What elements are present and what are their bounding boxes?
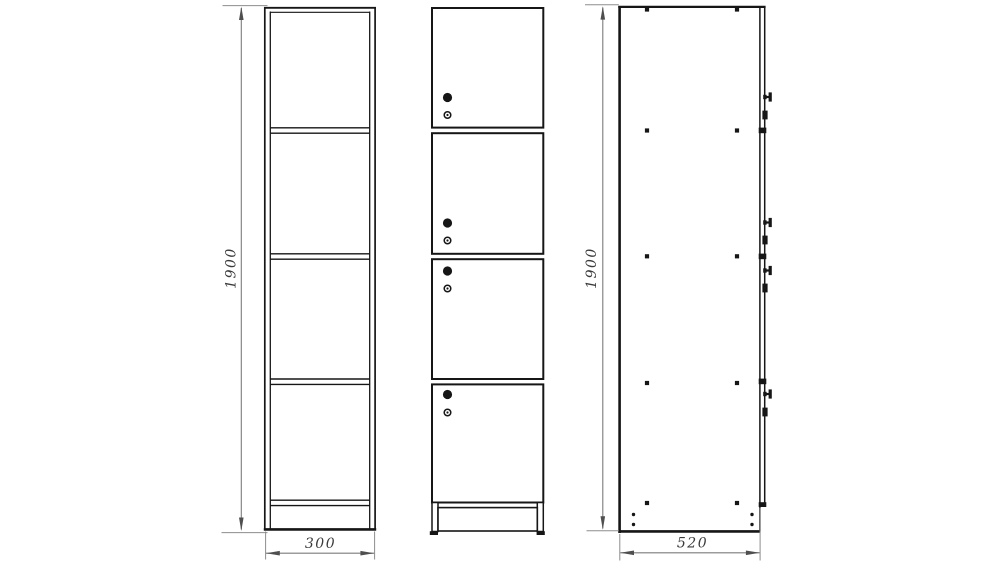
screw-mark xyxy=(632,513,635,516)
lock-pin-icon xyxy=(446,287,448,289)
dowel-mark xyxy=(735,381,739,385)
drawing-page: 1900 300 xyxy=(0,0,1000,565)
foot-screw-marks xyxy=(632,513,754,526)
front-width-dimension: 300 xyxy=(266,532,375,560)
door-4 xyxy=(432,384,543,502)
base-right-leg xyxy=(537,503,543,532)
dowel-mark xyxy=(645,128,649,132)
lock-side-icon xyxy=(762,389,771,416)
base-right-foot xyxy=(537,531,545,535)
side-depth-dimension-text: 520 xyxy=(677,536,708,552)
door-3 xyxy=(432,259,543,379)
dowel-mark xyxy=(735,128,739,132)
front-height-dimension: 1900 xyxy=(222,6,268,533)
cabinet-base xyxy=(430,503,545,536)
arrowhead-up xyxy=(239,7,244,20)
door-joint-cap xyxy=(759,254,767,260)
door-2 xyxy=(432,133,543,254)
arrowhead-up xyxy=(601,6,606,19)
arrowhead-down xyxy=(601,516,606,530)
dowel-mark xyxy=(735,254,739,258)
lock-knob-icon xyxy=(443,266,452,275)
lock-knob-icon xyxy=(443,93,452,102)
door-joint-cap xyxy=(759,128,767,134)
lock-side-icon xyxy=(762,218,771,245)
lock-side-icon xyxy=(762,266,771,293)
front-height-dimension-text: 1900 xyxy=(224,247,240,289)
dowel-marks xyxy=(645,7,739,505)
arrowhead-right xyxy=(746,551,760,556)
screw-mark xyxy=(750,513,753,516)
front-frame-view xyxy=(264,7,376,530)
door-joint-cap xyxy=(759,379,767,385)
shelf-2-lines xyxy=(270,254,370,259)
base-left-leg xyxy=(432,503,438,532)
technical-drawing-canvas: 1900 300 xyxy=(0,0,1000,565)
dowel-mark xyxy=(645,254,649,258)
dowel-mark xyxy=(645,501,649,505)
front-width-dimension-text: 300 xyxy=(305,536,336,552)
dowel-mark xyxy=(735,7,739,11)
lock-knob-icon xyxy=(443,390,452,399)
side-height-dimension-text: 1900 xyxy=(584,247,600,289)
arrowhead-left xyxy=(266,551,280,556)
side-depth-dimension: 520 xyxy=(620,508,760,561)
screw-mark xyxy=(632,523,635,526)
arrowhead-left xyxy=(620,551,634,556)
base-kick-panel xyxy=(438,508,537,531)
lock-pin-icon xyxy=(446,239,448,241)
shelf-4-lines xyxy=(270,500,370,505)
dowel-mark xyxy=(645,381,649,385)
lock-side-icon xyxy=(762,92,771,119)
arrowhead-down xyxy=(239,518,244,532)
dowel-mark xyxy=(735,501,739,505)
lock-knob-icon xyxy=(443,218,452,227)
base-left-foot xyxy=(430,531,438,535)
side-view xyxy=(618,6,772,533)
screw-mark xyxy=(750,523,753,526)
door-1 xyxy=(432,8,543,128)
lock-pin-icon xyxy=(446,411,448,413)
dowel-mark xyxy=(645,7,649,11)
shelf-1-lines xyxy=(270,128,370,133)
lock-pin-icon xyxy=(446,114,448,116)
door-bottom-cap xyxy=(759,502,767,507)
front-door-view xyxy=(430,8,545,535)
shelf-3-lines xyxy=(270,379,370,384)
side-height-dimension: 1900 xyxy=(584,5,619,531)
arrowhead-right xyxy=(360,551,374,556)
